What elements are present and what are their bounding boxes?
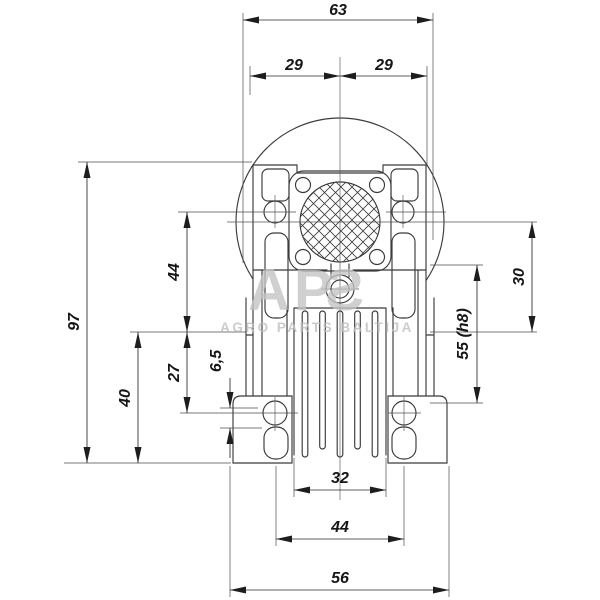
dim-32-label: 32 xyxy=(331,470,349,487)
dim-44-left-label: 44 xyxy=(166,263,183,282)
technical-drawing-canvas: 63 29 29 97 44 40 27 xyxy=(0,0,600,600)
gearbox-drawing: 63 29 29 97 44 40 27 xyxy=(0,0,600,600)
dim-27: 27 xyxy=(166,332,187,413)
dim-29-left-label: 29 xyxy=(284,57,303,74)
dim-29-right-label: 29 xyxy=(374,57,393,74)
dim-44-left: 44 xyxy=(166,212,187,332)
dim-97-label: 97 xyxy=(66,312,83,331)
dim-29-left: 29 xyxy=(250,57,340,76)
dim-30: 30 xyxy=(511,222,532,332)
dim-29-right: 29 xyxy=(340,57,427,76)
dim-63-label: 63 xyxy=(329,2,347,19)
dim-27-label: 27 xyxy=(166,363,183,383)
dim-6-5-label: 6,5 xyxy=(208,349,225,372)
watermark-logo-s-mirrored: S xyxy=(321,258,364,323)
dim-44-bottom-label: 44 xyxy=(330,519,349,536)
dim-56-label: 56 xyxy=(331,570,349,587)
dim-6-5: 6,5 xyxy=(208,349,230,458)
dim-30-label: 30 xyxy=(511,268,528,286)
dim-56: 56 xyxy=(230,570,449,590)
dim-97: 97 xyxy=(66,162,87,463)
watermark-subtitle: AGRO PARTS BALTIJA xyxy=(220,320,414,335)
dim-55-h8-label: 55 (h8) xyxy=(455,308,472,360)
dim-55-h8: 55 (h8) xyxy=(455,265,477,403)
dim-40-label: 40 xyxy=(117,389,134,408)
dim-44-bottom: 44 xyxy=(276,519,404,539)
dim-63: 63 xyxy=(243,2,433,20)
dim-40: 40 xyxy=(117,332,138,463)
